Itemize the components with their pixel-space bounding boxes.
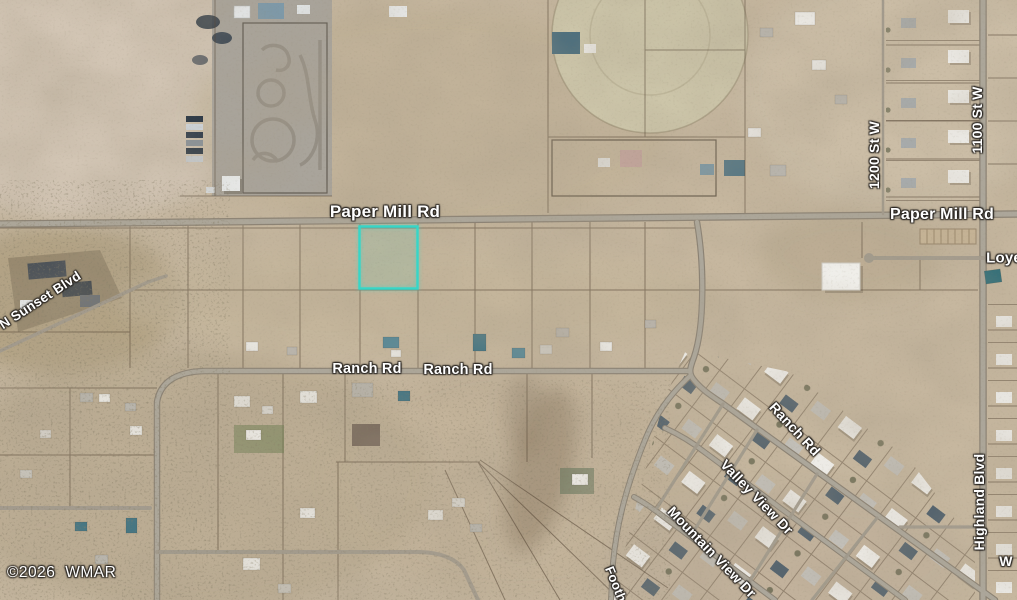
highlight-parcel[interactable] — [360, 227, 418, 289]
satellite-canvas[interactable] — [0, 0, 1017, 600]
satellite-map-view[interactable]: Paper Mill Rd Paper Mill Rd N Sunset Blv… — [0, 0, 1017, 600]
terrain-texture — [0, 0, 1017, 600]
